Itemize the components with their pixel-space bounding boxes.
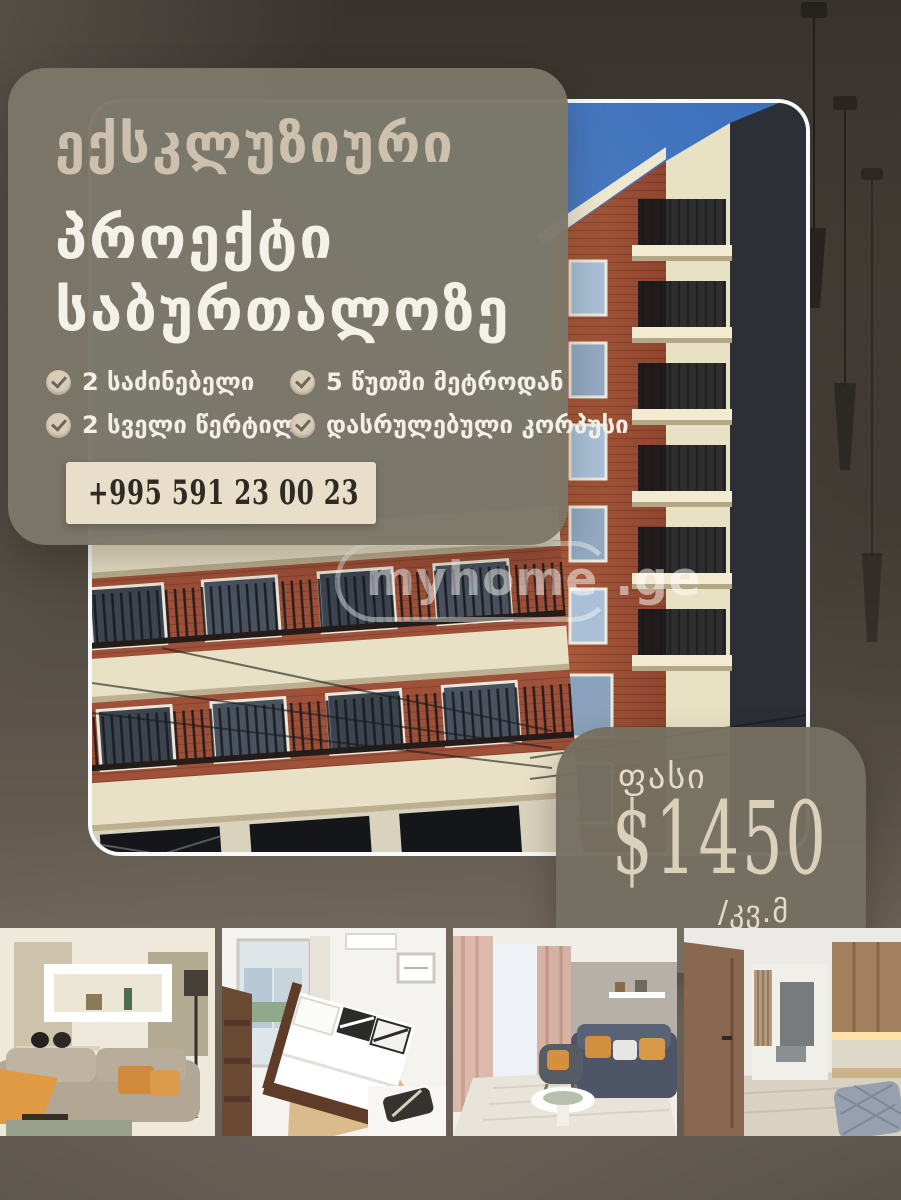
price-amount: $1450 <box>612 789 828 889</box>
headline-accent: ექსკლუზიური <box>55 112 455 175</box>
hallway-photo <box>684 928 901 1136</box>
feature-label: 2 სველი წერტილი <box>82 411 311 439</box>
features-grid: 2 საძინებელი 5 წუთში მეტროდან 2 სველი წე… <box>46 368 556 439</box>
watermark-logo-frame: myhome <box>335 541 613 622</box>
lounge-photo <box>453 928 677 1136</box>
watermark: myhome .ge <box>335 541 702 622</box>
feature-label: დასრულებული კორპუსი <box>326 411 629 439</box>
feature-item-completed: დასრულებული კორპუსი <box>290 411 629 439</box>
feature-item-metro: 5 წუთში მეტროდან <box>290 368 629 396</box>
watermark-tld: .ge <box>615 552 701 611</box>
check-icon <box>290 413 315 438</box>
feature-label: 2 საძინებელი <box>82 368 254 396</box>
headline-line3: საბურთალოზე <box>55 276 511 344</box>
bedroom-photo <box>222 928 446 1136</box>
gallery-photo-bedroom <box>222 928 446 1136</box>
check-icon <box>46 370 71 395</box>
info-panel: ექსკლუზიური პროექტი საბურთალოზე 2 საძინე… <box>8 68 568 545</box>
watermark-text: myhome <box>366 552 598 607</box>
phone-number: +995 591 23 00 23 <box>88 473 359 513</box>
gallery-photo-lounge <box>453 928 677 1136</box>
check-icon <box>290 370 315 395</box>
phone-badge: +995 591 23 00 23 <box>66 462 376 524</box>
check-icon <box>46 413 71 438</box>
price-unit: /კვ.მ <box>718 895 789 930</box>
gallery-photo-living-room <box>0 928 215 1136</box>
poster-canvas: myhome .ge ექსკლუზიური პროექტი საბურთალო… <box>0 0 901 1200</box>
gallery-photo-hallway <box>684 928 901 1136</box>
feature-item-bathrooms: 2 სველი წერტილი <box>46 411 286 439</box>
feature-label: 5 წუთში მეტროდან <box>326 368 564 396</box>
feature-item-bedrooms: 2 საძინებელი <box>46 368 286 396</box>
headline-line2: პროექტი <box>55 204 334 272</box>
living-room-photo <box>0 928 215 1136</box>
